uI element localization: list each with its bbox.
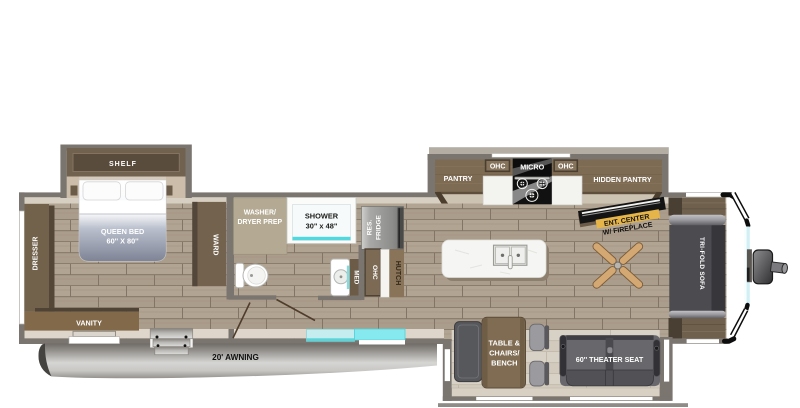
svg-text:TABLE &: TABLE & (489, 339, 521, 348)
svg-text:60'' X 80'': 60'' X 80'' (107, 237, 139, 246)
svg-text:RES.: RES. (367, 220, 374, 236)
svg-text:FRIDGE: FRIDGE (376, 214, 383, 240)
svg-text:WASHER/: WASHER/ (244, 210, 276, 217)
svg-text:BENCH: BENCH (491, 359, 517, 368)
svg-text:PANTRY: PANTRY (444, 174, 473, 183)
svg-text:SHOWER: SHOWER (305, 212, 339, 221)
svg-text:DRYER PREP: DRYER PREP (238, 219, 283, 226)
svg-text:QUEEN BED: QUEEN BED (101, 227, 144, 236)
svg-text:OHC: OHC (558, 164, 574, 171)
svg-text:TRI-FOLD SOFA: TRI-FOLD SOFA (698, 237, 705, 290)
svg-text:WARD: WARD (212, 234, 219, 255)
svg-text:OHC: OHC (490, 164, 506, 171)
svg-text:60'' THEATER SEAT: 60'' THEATER SEAT (576, 355, 644, 364)
svg-text:HUTCH: HUTCH (394, 261, 401, 286)
svg-text:VANITY: VANITY (76, 319, 102, 328)
svg-text:CHAIRS/: CHAIRS/ (489, 349, 519, 358)
svg-text:20' AWNING: 20' AWNING (212, 353, 259, 362)
svg-text:DRESSER: DRESSER (33, 237, 40, 271)
svg-text:HIDDEN PANTRY: HIDDEN PANTRY (593, 175, 652, 184)
svg-text:OHC: OHC (371, 265, 378, 280)
svg-text:MICRO: MICRO (520, 162, 544, 171)
svg-text:SHELF: SHELF (109, 161, 137, 168)
svg-text:MED: MED (352, 270, 359, 284)
svg-text:30" x 48": 30" x 48" (306, 222, 338, 231)
